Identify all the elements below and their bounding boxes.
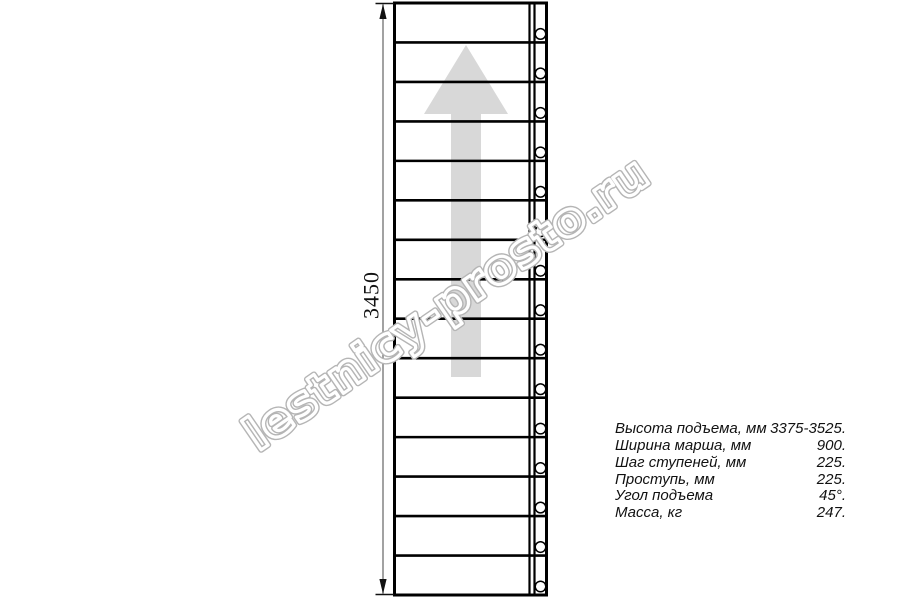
spec-value: 45°. <box>819 488 846 505</box>
fastener-circle <box>535 384 546 395</box>
spec-value: 3375-3525. <box>770 421 846 438</box>
fastener-circle <box>535 68 546 79</box>
dimension-arrowhead-up <box>379 4 386 19</box>
drawing-canvas: 3450lestnicy-prosto.rulestnicy-prosto.ru… <box>0 0 900 600</box>
spec-label: Проступь, мм <box>615 472 715 489</box>
fastener-circle <box>535 463 546 474</box>
fastener-circle <box>535 29 546 40</box>
spec-label: Ширина марша, мм <box>615 438 751 455</box>
spec-row-angle: Угол подъема 45°. <box>615 488 846 505</box>
spec-value: 247. <box>817 505 846 522</box>
fastener-circle <box>535 542 546 553</box>
fastener-circle <box>535 344 546 355</box>
fastener-circle <box>535 187 546 198</box>
spec-label: Масса, кг <box>615 505 682 522</box>
spec-row-tread-depth: Проступь, мм 225. <box>615 472 846 489</box>
spec-row-flight-width: Ширина марша, мм 900. <box>615 438 846 455</box>
spec-label: Высота подъема, мм <box>615 421 767 438</box>
spec-row-step-pitch: Шаг ступеней, мм 225. <box>615 455 846 472</box>
spec-value: 900. <box>817 438 846 455</box>
dimension-label: 3450 <box>359 271 384 319</box>
spec-label: Шаг ступеней, мм <box>615 455 746 472</box>
dimension-arrowhead-down <box>379 579 386 594</box>
specs-table: Высота подъема, мм 3375-3525. Ширина мар… <box>615 421 846 522</box>
fastener-circle <box>535 502 546 513</box>
fastener-circle <box>535 147 546 158</box>
spec-row-height: Высота подъема, мм 3375-3525. <box>615 421 846 438</box>
spec-value: 225. <box>817 472 846 489</box>
fastener-circle <box>535 305 546 316</box>
spec-row-mass: Масса, кг 247. <box>615 505 846 522</box>
spec-label: Угол подъема <box>615 488 713 505</box>
spec-value: 225. <box>817 455 846 472</box>
watermark-text: lestnicy-prosto.ru <box>234 146 659 461</box>
fastener-circle <box>535 108 546 119</box>
fastener-circle <box>535 423 546 434</box>
fastener-circle <box>535 581 546 592</box>
